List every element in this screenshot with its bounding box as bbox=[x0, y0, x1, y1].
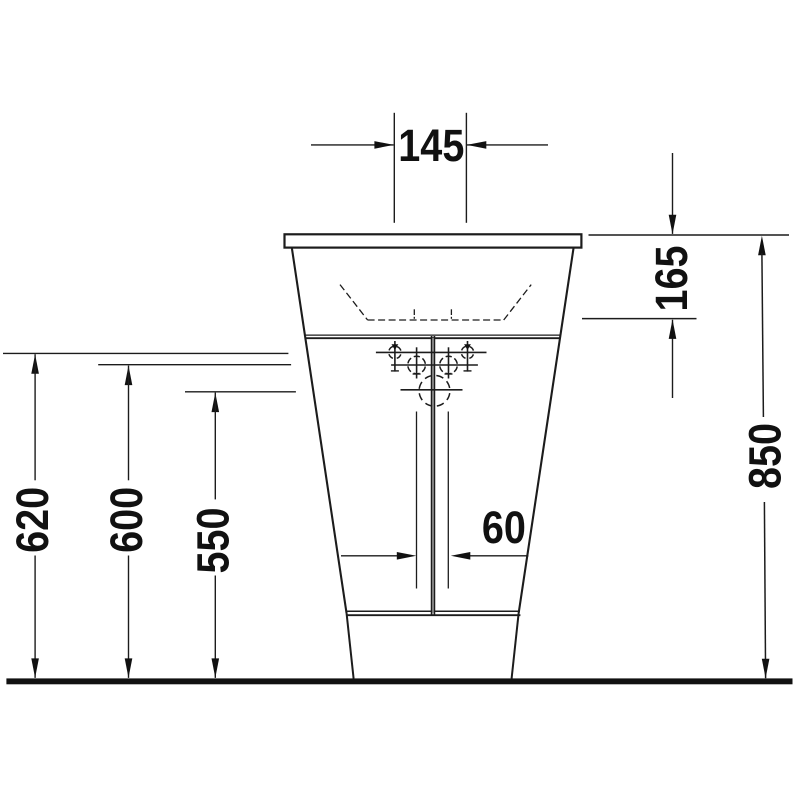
svg-text:165: 165 bbox=[646, 245, 696, 311]
svg-text:550: 550 bbox=[188, 507, 238, 573]
svg-text:620: 620 bbox=[8, 487, 58, 553]
svg-text:60: 60 bbox=[482, 503, 526, 553]
svg-text:600: 600 bbox=[102, 487, 152, 553]
svg-text:850: 850 bbox=[740, 423, 790, 489]
svg-text:145: 145 bbox=[398, 120, 464, 170]
